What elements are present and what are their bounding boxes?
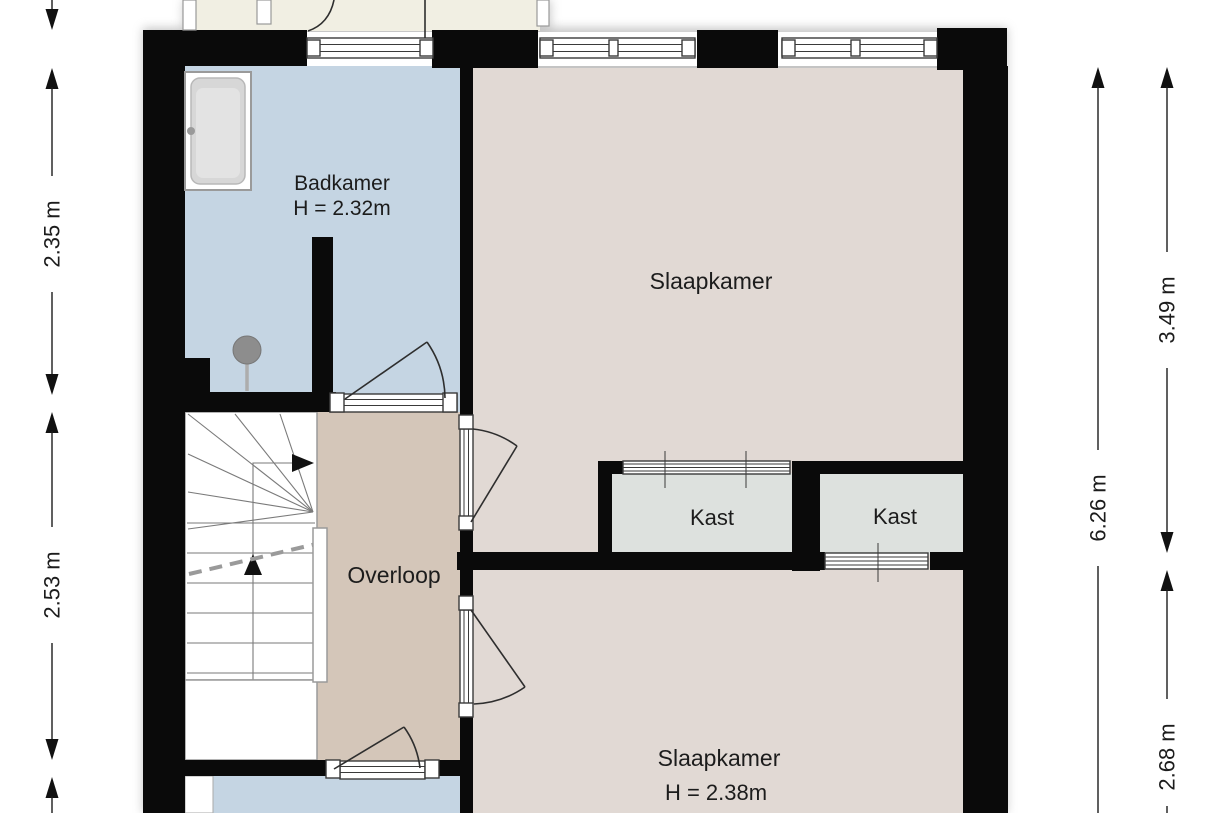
wall-left <box>143 30 185 813</box>
room-bottom-partial <box>185 776 460 813</box>
dimension-arrow-up <box>46 412 59 433</box>
dimension-left-lower-label: 2.53 m <box>40 551 65 618</box>
kast-right-label: Kast <box>873 504 917 529</box>
wall-overloop-bottom-left <box>143 760 326 776</box>
dimension-arrow-up <box>1161 570 1174 591</box>
dimension-right-inner: 6.26 m <box>1086 67 1111 813</box>
dimension-right-outer-lower: 2.68 m <box>1155 570 1180 813</box>
dimension-left-bottom-cut <box>46 777 59 813</box>
dimension-arrow-down <box>46 374 59 395</box>
windows <box>307 38 937 58</box>
dimension-arrow-up <box>1161 67 1174 88</box>
dimension-arrow-up <box>46 777 59 798</box>
stair-landing <box>185 680 317 760</box>
dimension-left-lower: 2.53 m <box>40 412 65 760</box>
wall-overloop-bottom-right <box>439 760 473 776</box>
wall-bedroom-divider <box>457 552 825 570</box>
stairwell <box>185 412 317 680</box>
wall-kast-right-top <box>820 461 965 474</box>
wall-top-pier-2 <box>697 30 778 68</box>
wall-kast-left-side <box>598 461 612 568</box>
wall-badkamer-interior <box>312 237 333 412</box>
floorplan-canvas: Badkamer H = 2.32m Slaapkamer Overloop K… <box>0 0 1220 813</box>
staircase <box>185 412 327 813</box>
dimension-right-inner-label: 6.26 m <box>1086 474 1111 541</box>
dimension-left-upper: 2.35 m <box>40 68 65 395</box>
wall-kast-separator <box>792 461 820 571</box>
room-slaapkamer-bottom <box>473 570 963 813</box>
slaapkamer-bottom-label: Slaapkamer <box>658 745 781 771</box>
badkamer-height-label: H = 2.32m <box>293 197 390 220</box>
wall-step <box>185 358 210 394</box>
overloop-label: Overloop <box>347 562 440 588</box>
wall-right <box>963 66 1008 813</box>
window-3 <box>782 38 937 58</box>
wall-top-left <box>143 30 307 66</box>
window-2 <box>540 38 695 58</box>
bathtub-icon <box>185 72 251 190</box>
stair-balustrade <box>313 528 327 682</box>
dimension-arrow-up <box>1092 67 1105 88</box>
wall-top-pier-1 <box>432 30 538 68</box>
upper-door-post <box>257 0 271 24</box>
dimension-right-outer-upper-label: 3.49 m <box>1155 276 1180 343</box>
dimension-arrow-down <box>1161 532 1174 553</box>
wall-divider-upper <box>460 66 473 416</box>
floorplan-page: Badkamer H = 2.32m Slaapkamer Overloop K… <box>0 0 1220 813</box>
kast-left-label: Kast <box>690 505 734 530</box>
stair-lower-flight <box>185 776 213 813</box>
dimension-right-outer-upper: 3.49 m <box>1155 67 1180 553</box>
upper-wall-strip-left <box>183 0 196 30</box>
dimension-arrow-down <box>46 9 59 30</box>
slaapkamer-bottom-height-label: H = 2.38m <box>665 780 767 805</box>
upper-wall-strip-right <box>537 0 549 26</box>
dimension-left-upper-label: 2.35 m <box>40 200 65 267</box>
wall-bedroom-divider-stub <box>930 552 965 570</box>
slaapkamer-top-label: Slaapkamer <box>650 268 773 294</box>
dimension-arrow-up <box>46 68 59 89</box>
room-upper-partial <box>195 0 540 31</box>
badkamer-label: Badkamer <box>294 172 390 195</box>
wall-kast-left-stub <box>598 461 623 474</box>
wall-top-right-corner <box>937 28 1007 70</box>
wall-badkamer-bottom <box>143 392 336 412</box>
window-1 <box>307 38 433 58</box>
dimension-left-cut <box>46 0 59 30</box>
dimension-arrow-down <box>46 739 59 760</box>
bathtub-faucet <box>187 127 195 135</box>
dimension-right-outer-lower-label: 2.68 m <box>1155 723 1180 790</box>
